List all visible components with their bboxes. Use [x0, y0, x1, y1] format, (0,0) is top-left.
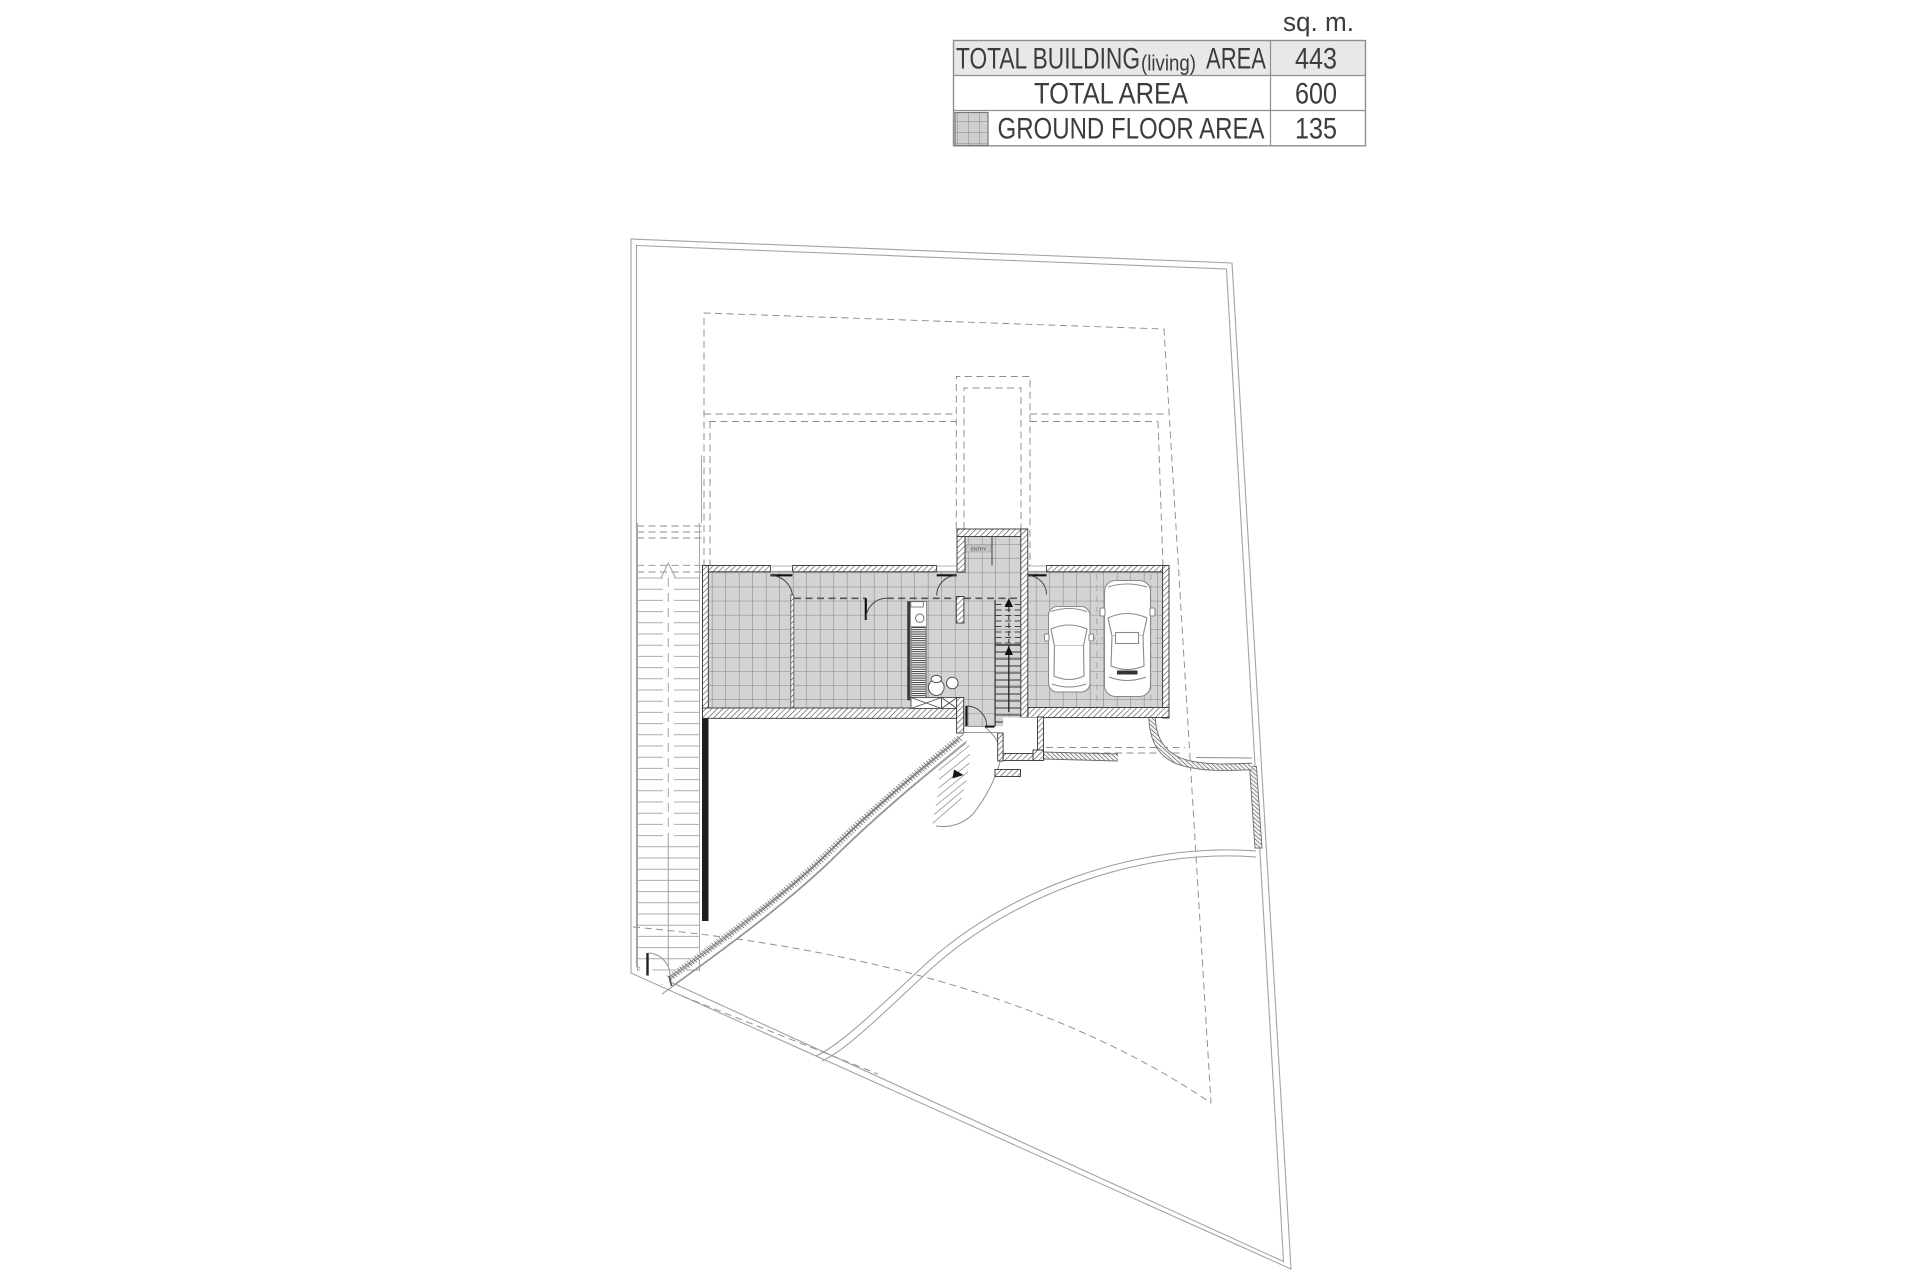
svg-text:135: 135 [1295, 113, 1337, 146]
svg-text:(living): (living) [1141, 51, 1196, 76]
svg-text:GROUND FLOOR AREA: GROUND FLOOR AREA [998, 113, 1265, 146]
svg-text:443: 443 [1295, 43, 1337, 76]
svg-text:sq. m.: sq. m. [1283, 7, 1354, 37]
svg-text:600: 600 [1295, 78, 1337, 111]
svg-text:AREA: AREA [1206, 43, 1266, 76]
svg-text:TOTAL AREA: TOTAL AREA [1034, 78, 1188, 111]
svg-text:TOTAL BUILDING: TOTAL BUILDING [956, 43, 1140, 76]
svg-text:ENTRY: ENTRY [971, 547, 986, 552]
